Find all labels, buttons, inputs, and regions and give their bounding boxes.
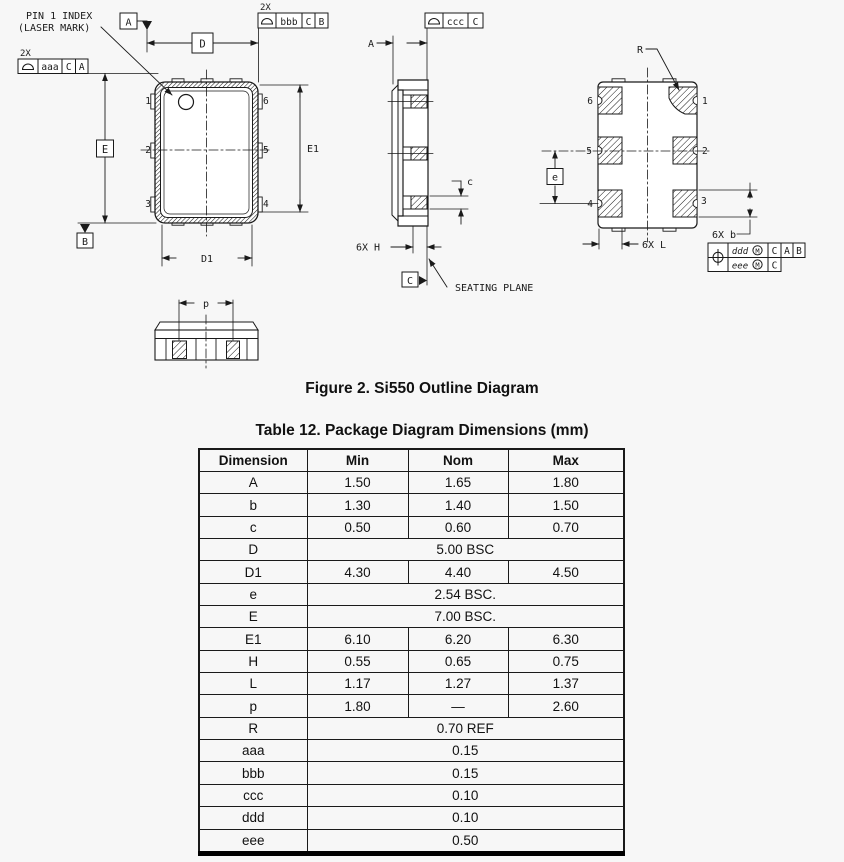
value-cell-span: 0.10 [307,807,624,829]
dim-e1: E1 [260,85,319,212]
value-cell: 0.60 [408,516,508,538]
dim-h-label: 6X H [356,243,380,254]
value-cell-span: 0.70 REF [307,717,624,739]
value-cell: 1.37 [508,673,624,695]
pin-label: 3 [701,196,707,207]
fcf-aaa-datum1: C [66,62,72,73]
value-cell: 1.17 [307,673,408,695]
value-cell: 0.65 [408,650,508,672]
dimension-cell: bbb [199,762,307,784]
datum-triangle-icon [142,21,152,30]
pin-label: 5 [263,145,269,156]
datasheet-page: 1 2 3 6 5 4 PIN 1 INDEX (LASER MARK) A D… [0,0,844,862]
dimension-cell: e [199,583,307,605]
value-cell-span: 0.50 [307,829,624,854]
value-cell-span: 2.54 BSC. [307,583,624,605]
dim-d1-label: D1 [201,254,213,265]
dimension-cell: E1 [199,628,307,650]
value-cell: 0.75 [508,650,624,672]
fcf-bbb-datum2: B [319,17,325,28]
datum-c-label: C [407,276,413,287]
table-row: D14.304.404.50 [199,561,624,583]
fcf-position: ddd M C A B eee M C [708,243,805,272]
pin-label: 3 [145,199,151,210]
pin1-note-line1: PIN 1 INDEX [26,11,92,22]
column-header-min: Min [307,449,408,472]
package-dimensions-table: Dimension Min Nom Max A1.501.651.80b1.30… [198,448,625,856]
dimension-cell: eee [199,829,307,854]
fcf-bbb-tol: bbb [280,17,297,28]
fcf-pos-r1-datum1: C [772,246,778,257]
dim-h: 6X H [356,226,441,285]
fcf-bbb-datum1: C [306,17,312,28]
pin-label: 6 [587,96,593,107]
datum-a-flag: A [120,13,152,52]
dim-d: D [147,33,258,53]
value-cell: 0.50 [307,516,408,538]
dim-d-label: D [199,39,205,51]
table-row: ccc0.10 [199,784,624,806]
column-header-dimension: Dimension [199,449,307,472]
dim-a: A [368,36,427,84]
value-cell: 1.40 [408,494,508,516]
dimension-cell: R [199,717,307,739]
pin-label: 2 [702,146,708,157]
top-view [141,70,272,236]
value-cell-span: 0.15 [307,762,624,784]
table-row: e2.54 BSC. [199,583,624,605]
dim-l-label: 6X L [642,240,666,251]
datum-triangle-icon [419,276,427,285]
table-row: A1.501.651.80 [199,472,624,494]
datum-b-flag: B [77,224,93,248]
fcf-aaa-tol: aaa [41,62,58,73]
dim-a-label: A [368,39,374,50]
value-cell: — [408,695,508,717]
dimension-cell: aaa [199,740,307,762]
table-row: R0.70 REF [199,717,624,739]
value-cell: 1.30 [307,494,408,516]
fcf-pos-tol1: ddd [732,247,749,257]
fcf-pos-tol2: eee [732,261,748,271]
value-cell-span: 0.15 [307,740,624,762]
fcf-bbb: 2X bbb C B [258,3,328,82]
fcf-aaa-qty: 2X [20,49,31,59]
fcf-ccc: ccc C [425,13,483,80]
pin-label: 4 [263,199,269,210]
fcf-aaa-datum2: A [79,62,85,73]
dim-e-small-label: e [552,173,558,184]
column-header-nom: Nom [408,449,508,472]
dim-b-label: 6X b [712,230,736,241]
value-cell-span: 0.10 [307,784,624,806]
pin1-note-line2: (LASER MARK) [18,23,90,34]
fcf-pos-r2-datum1: C [772,260,778,271]
svg-text:M: M [755,262,759,270]
table-row: aaa0.15 [199,740,624,762]
datum-b-label: B [82,237,88,248]
column-header-max: Max [508,449,624,472]
value-cell: 4.50 [508,561,624,583]
dimension-cell: D [199,539,307,561]
fcf-pos-r1-datum3: B [796,246,802,257]
dimension-cell: L [199,673,307,695]
dim-e1-label: E1 [307,144,319,155]
datum-triangle-icon [80,224,90,233]
table-row: bbb0.15 [199,762,624,784]
table-row: E7.00 BSC. [199,606,624,628]
figure-caption: Figure 2. Si550 Outline Diagram [0,380,844,398]
value-cell: 1.50 [307,472,408,494]
value-cell-span: 7.00 BSC. [307,606,624,628]
pin-label: 2 [145,145,151,156]
dim-b: 6X b [699,183,757,241]
table-row: b1.301.401.50 [199,494,624,516]
dimension-cell: c [199,516,307,538]
dim-e-label: E [102,144,108,156]
table-row: c0.500.600.70 [199,516,624,538]
dim-e-small: e [540,151,598,204]
value-cell: 4.40 [408,561,508,583]
pin-label: 5 [586,146,592,157]
table-row: E16.106.206.30 [199,628,624,650]
p-view-lid [155,322,258,330]
value-cell: 0.70 [508,516,624,538]
datum-c-flag: C [402,272,427,287]
dimension-cell: ddd [199,807,307,829]
dim-c: c [430,177,473,224]
pin-label: 6 [263,96,269,107]
value-cell: 4.30 [307,561,408,583]
table-row: ddd0.10 [199,807,624,829]
dimension-cell: H [199,650,307,672]
value-cell: 1.65 [408,472,508,494]
dimension-cell: ccc [199,784,307,806]
value-cell: 0.55 [307,650,408,672]
fcf-pos-r1-datum2: A [784,246,790,257]
dim-l: 6X L [583,229,666,251]
value-cell: 1.27 [408,673,508,695]
p-view [155,315,258,368]
value-cell: 1.80 [307,695,408,717]
dimension-cell: E [199,606,307,628]
pin1-index-circle [179,95,194,110]
dim-c-label: c [467,177,473,188]
fcf-ccc-datum1: C [473,17,479,28]
pin-label: 4 [587,199,593,210]
table-row: p1.80—2.60 [199,695,624,717]
seating-plane-callout: SEATING PLANE [429,259,533,294]
seating-plane-label: SEATING PLANE [455,283,533,294]
p-view-body [155,330,258,360]
pin-label: 1 [145,96,151,107]
value-cell: 6.10 [307,628,408,650]
value-cell: 1.50 [508,494,624,516]
outline-diagram: 1 2 3 6 5 4 PIN 1 INDEX (LASER MARK) A D… [0,0,844,374]
table-caption: Table 12. Package Diagram Dimensions (mm… [0,422,844,440]
table-header-row: Dimension Min Nom Max [199,449,624,472]
datum-a-label: A [125,18,131,29]
table-row: D5.00 BSC [199,539,624,561]
side-view-lid [392,85,398,221]
table-row: eee0.50 [199,829,624,854]
value-cell: 2.60 [508,695,624,717]
side-view [388,80,433,226]
dimension-cell: b [199,494,307,516]
value-cell: 6.30 [508,628,624,650]
dimension-cell: A [199,472,307,494]
value-cell-span: 5.00 BSC [307,539,624,561]
pin-label: 1 [702,96,708,107]
fcf-ccc-tol: ccc [447,17,464,28]
dim-p-label: p [203,299,209,310]
dimension-cell: p [199,695,307,717]
pin1-leader-arrow-icon [101,27,172,95]
bottom-view [542,68,712,242]
svg-text:M: M [755,247,759,255]
table-row: L1.171.271.37 [199,673,624,695]
value-cell: 6.20 [408,628,508,650]
dimension-cell: D1 [199,561,307,583]
dim-r-label: R [637,45,644,56]
value-cell: 1.80 [508,472,624,494]
dim-d1: D1 [162,225,252,266]
fcf-bbb-qty: 2X [260,3,271,13]
table-row: H0.550.650.75 [199,650,624,672]
